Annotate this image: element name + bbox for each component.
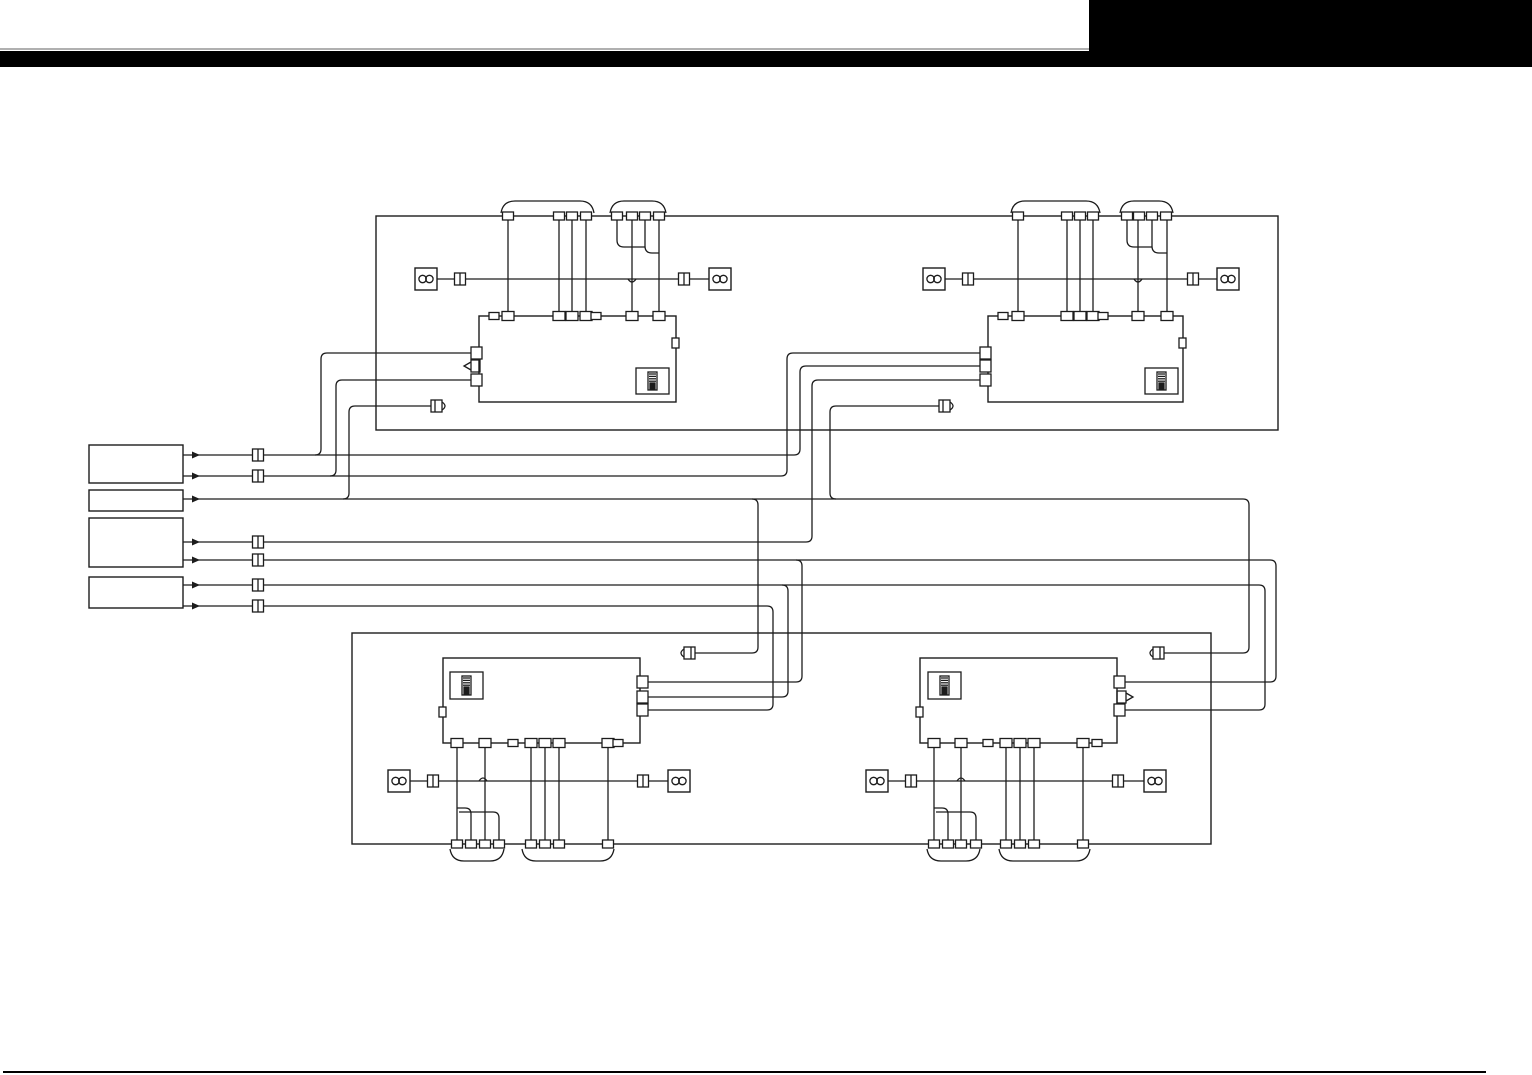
net-source3-line1 bbox=[183, 380, 980, 542]
frame-edge-pin-21 bbox=[526, 840, 537, 848]
frame-edge-pin-8 bbox=[654, 212, 665, 220]
net-source1-line2 bbox=[183, 353, 980, 476]
unit-bottom-left bbox=[443, 658, 640, 743]
source-box-2 bbox=[89, 490, 183, 511]
unit-edge-pin-12 bbox=[1161, 312, 1173, 321]
frame-edge-pin-11 bbox=[1075, 212, 1086, 220]
frame-edge-pin-22 bbox=[540, 840, 551, 848]
unit-edge-pin-24 bbox=[1077, 739, 1089, 748]
unit-top-left bbox=[479, 316, 676, 402]
frame-edge-pin-17 bbox=[452, 840, 463, 848]
unit-port-bl-1 bbox=[637, 676, 648, 688]
flow-arrow-7 bbox=[192, 603, 200, 610]
unit-port-tl-3 bbox=[471, 374, 482, 386]
unit-edge-tab-8 bbox=[1092, 740, 1102, 747]
unit-port-bl-3 bbox=[637, 704, 648, 716]
unit-port-tl-1 bbox=[471, 347, 482, 359]
unit-edge-pin-13 bbox=[451, 739, 463, 748]
flow-arrow-6 bbox=[192, 582, 200, 589]
unit-edge-pin-6 bbox=[653, 312, 665, 321]
frame-edge-pin-19 bbox=[480, 840, 491, 848]
unit-port-br-3 bbox=[1114, 704, 1125, 716]
frame-edge-pin-24 bbox=[603, 840, 614, 848]
unit-edge-pin-15 bbox=[525, 739, 537, 748]
unit-edge-pin-9 bbox=[1074, 312, 1086, 321]
net-source2-branch-tl-plug bbox=[343, 406, 431, 499]
frame-edge-pin-25 bbox=[929, 840, 940, 848]
rca-plug-top-right bbox=[939, 400, 950, 412]
bracket-tr-1 bbox=[1011, 201, 1100, 213]
frame-edge-pin-6 bbox=[627, 212, 638, 220]
wiring-diagram-canvas bbox=[0, 0, 1532, 1075]
unit-bottom-left-switch-icon-block bbox=[464, 687, 469, 694]
net-source3-line2-branch bbox=[646, 560, 802, 682]
net-source4-line1-branch bbox=[646, 585, 788, 697]
net-source1-line2-branch bbox=[330, 380, 472, 476]
frame-edge-pin-9 bbox=[1013, 212, 1024, 220]
frame-edge-pin-28 bbox=[971, 840, 982, 848]
unit-edge-tab-7 bbox=[983, 740, 993, 747]
frame-edge-pin-7 bbox=[640, 212, 651, 220]
frame-edge-pin-18 bbox=[466, 840, 477, 848]
unit-edge-pin-16 bbox=[539, 739, 551, 748]
unit-edge-pin-19 bbox=[928, 739, 940, 748]
wire-tl-pin-b3-merge bbox=[645, 216, 659, 253]
source-box-1 bbox=[89, 445, 183, 483]
stub-plug-top-left-unit bbox=[464, 360, 480, 372]
unit-bottom-left-side-tab bbox=[439, 707, 446, 717]
unit-bottom-right-side-tab bbox=[916, 707, 923, 717]
unit-edge-tab-2 bbox=[591, 313, 601, 320]
bracket-tr-2 bbox=[1120, 201, 1173, 213]
frame-edge-pin-30 bbox=[1015, 840, 1026, 848]
unit-edge-pin-14 bbox=[479, 739, 491, 748]
footer-rule bbox=[3, 1071, 1486, 1073]
flow-arrow-2 bbox=[192, 473, 200, 480]
net-source4-line1 bbox=[183, 585, 1265, 710]
wire-br-pin-4-merge bbox=[936, 812, 976, 844]
frame-edge-pin-29 bbox=[1001, 840, 1012, 848]
wire-br-pin-2-merge bbox=[934, 808, 948, 844]
frame-edge-pin-13 bbox=[1122, 212, 1133, 220]
header-corner-block bbox=[1089, 0, 1532, 67]
unit-edge-pin-1 bbox=[502, 312, 514, 321]
frame-edge-pin-12 bbox=[1088, 212, 1099, 220]
frame-edge-pin-2 bbox=[554, 212, 565, 220]
frame-edge-pin-26 bbox=[943, 840, 954, 848]
bracket-bl-2 bbox=[522, 849, 614, 861]
unit-top-right-side-tab bbox=[1179, 338, 1186, 348]
unit-top-left-side-tab bbox=[672, 338, 679, 348]
unit-port-br-1 bbox=[1114, 676, 1125, 688]
unit-bottom-right-switch-icon-block bbox=[942, 687, 947, 694]
rca-plug-bottom-right bbox=[1153, 647, 1164, 659]
unit-edge-pin-8 bbox=[1061, 312, 1073, 321]
unit-edge-pin-3 bbox=[566, 312, 578, 321]
wire-bl-pin-2-merge bbox=[457, 808, 471, 844]
frame-edge-pin-5 bbox=[612, 212, 623, 220]
bracket-br-1 bbox=[927, 849, 980, 861]
bracket-tl-2 bbox=[610, 201, 666, 213]
unit-edge-pin-4 bbox=[580, 312, 592, 321]
frame-edge-pin-10 bbox=[1062, 212, 1073, 220]
source-box-3 bbox=[89, 518, 183, 567]
frame-edge-pin-32 bbox=[1078, 840, 1089, 848]
net-source2-main bbox=[183, 499, 1249, 653]
unit-top-right-switch-icon-block bbox=[1159, 383, 1164, 389]
net-source3-line2 bbox=[183, 560, 1276, 682]
unit-edge-pin-20 bbox=[955, 739, 967, 748]
net-source2-branch-tr-plug bbox=[830, 406, 939, 499]
unit-edge-tab-1 bbox=[489, 313, 499, 320]
unit-top-left-switch-icon-block bbox=[650, 383, 655, 389]
unit-edge-tab-6 bbox=[613, 740, 623, 747]
bracket-tl-1 bbox=[501, 201, 594, 213]
source-box-4 bbox=[89, 577, 183, 608]
unit-edge-pin-2 bbox=[553, 312, 565, 321]
frame-edge-pin-27 bbox=[956, 840, 967, 848]
frame-edge-pin-14 bbox=[1134, 212, 1145, 220]
unit-edge-tab-4 bbox=[1098, 313, 1108, 320]
frame-edge-pin-16 bbox=[1161, 212, 1172, 220]
rca-plug-top-left bbox=[431, 400, 442, 412]
unit-edge-pin-23 bbox=[1028, 739, 1040, 748]
unit-bottom-right bbox=[920, 658, 1117, 743]
wire-tr-pin-b3-merge bbox=[1152, 216, 1167, 253]
bracket-br-2 bbox=[999, 849, 1090, 861]
rca-plug-bottom-left bbox=[684, 647, 695, 659]
unit-edge-pin-22 bbox=[1014, 739, 1026, 748]
unit-edge-tab-5 bbox=[508, 740, 518, 747]
net-source1-line1-branch bbox=[315, 353, 472, 455]
top-harness-frame bbox=[376, 216, 1278, 430]
frame-edge-pin-4 bbox=[581, 212, 592, 220]
page bbox=[0, 0, 1532, 1075]
unit-port-tr-2 bbox=[980, 360, 991, 372]
unit-port-bl-2 bbox=[637, 691, 648, 703]
unit-edge-pin-11 bbox=[1132, 312, 1144, 321]
unit-top-right bbox=[988, 316, 1183, 402]
flow-arrow-1 bbox=[192, 452, 200, 459]
header-gray-rule bbox=[0, 48, 1089, 50]
frame-edge-pin-23 bbox=[554, 840, 565, 848]
unit-edge-pin-10 bbox=[1087, 312, 1099, 321]
frame-edge-pin-31 bbox=[1029, 840, 1040, 848]
frame-edge-pin-20 bbox=[494, 840, 505, 848]
stub-plug-bottom-right-unit bbox=[1117, 691, 1133, 703]
bracket-bl-1 bbox=[450, 849, 504, 861]
flow-arrow-3 bbox=[192, 496, 200, 503]
unit-edge-tab-3 bbox=[998, 313, 1008, 320]
unit-edge-pin-5 bbox=[626, 312, 638, 321]
net-source2-branch-bl-plug bbox=[695, 499, 758, 653]
frame-edge-pin-1 bbox=[503, 212, 514, 220]
frame-edge-pin-15 bbox=[1147, 212, 1158, 220]
unit-port-tr-3 bbox=[980, 374, 991, 386]
wire-bl-pin-4-merge bbox=[459, 812, 499, 844]
unit-edge-pin-21 bbox=[1000, 739, 1012, 748]
frame-edge-pin-3 bbox=[567, 212, 578, 220]
unit-port-tr-1 bbox=[980, 347, 991, 359]
unit-edge-pin-17 bbox=[553, 739, 565, 748]
flow-arrow-5 bbox=[192, 557, 200, 564]
flow-arrow-4 bbox=[192, 539, 200, 546]
unit-edge-pin-7 bbox=[1012, 312, 1024, 321]
unit-edge-pin-18 bbox=[602, 739, 614, 748]
